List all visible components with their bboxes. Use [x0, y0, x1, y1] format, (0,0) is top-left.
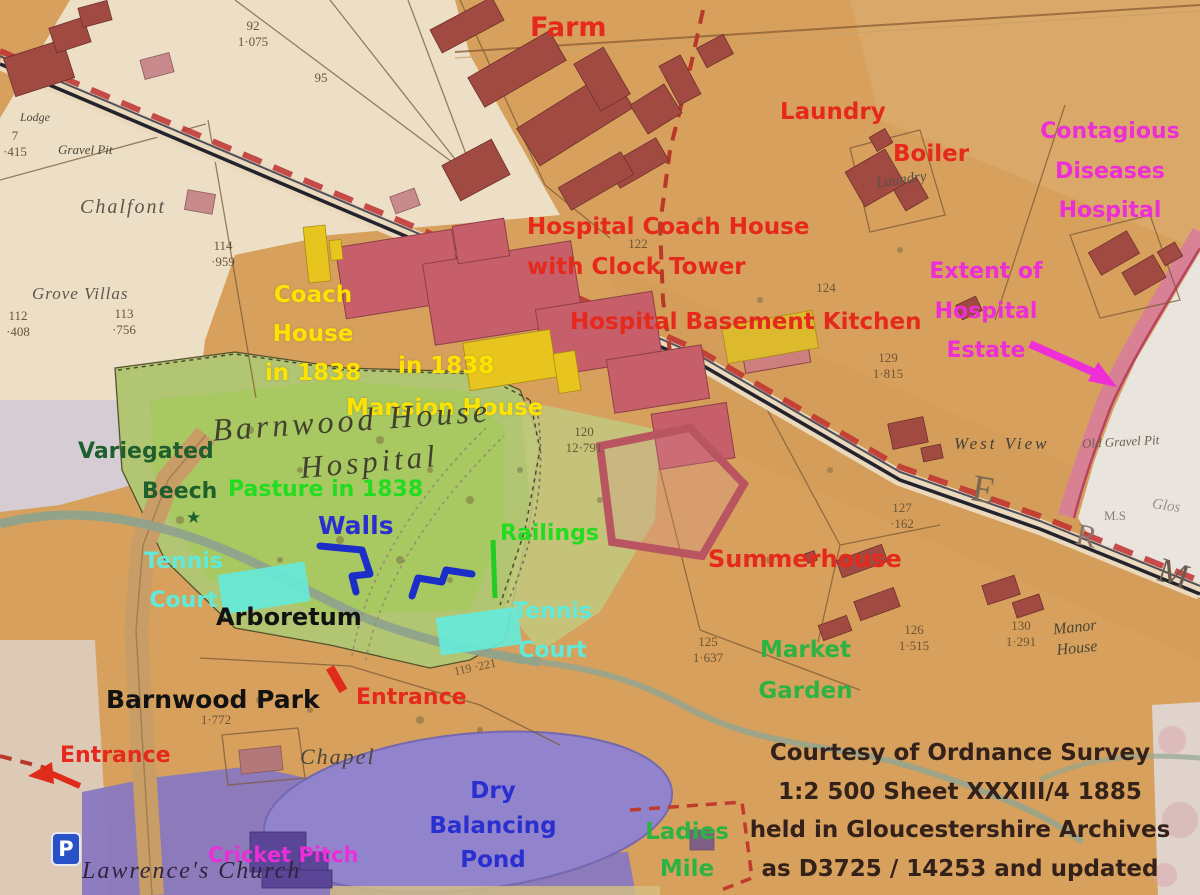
- credit-text: Courtesy of Ordnance Survey 1:2 500 Shee…: [720, 734, 1200, 889]
- map-script-west-view: West View: [954, 434, 1049, 454]
- annotated-map: Farm Laundry Boiler Hospital Coach House…: [0, 0, 1200, 895]
- label-entrance-left: Entrance: [60, 740, 171, 772]
- parcel-129: 129 1·815: [864, 350, 912, 381]
- label-arboretum: Arboretum: [216, 600, 362, 635]
- parcel-122: 122: [618, 236, 658, 252]
- parcel-92: 92 1·075: [228, 18, 278, 49]
- label-in-1838: in 1838: [398, 350, 494, 383]
- map-script-chapel: Chapel: [300, 744, 376, 770]
- parcel-117: 7 ·415: [0, 128, 30, 159]
- parking-icon: P: [53, 834, 79, 864]
- map-script-manor-house: Manor House: [1034, 614, 1118, 664]
- label-laundry: Laundry: [780, 96, 886, 129]
- label-market-garden: Market Garden: [748, 630, 863, 713]
- label-boiler: Boiler: [893, 138, 969, 171]
- map-script-ms: M.S: [1104, 508, 1126, 524]
- map-script-lodge: Lodge: [20, 110, 50, 125]
- parcel-112: 112 ·408: [0, 308, 36, 339]
- label-railings: Railings: [500, 518, 599, 550]
- parcel-125: 125 1·637: [684, 634, 732, 665]
- label-summerhouse: Summerhouse: [708, 542, 902, 577]
- parcel-124: 124: [806, 280, 846, 296]
- beech-star-icon: ★: [186, 506, 201, 531]
- parcel-95: 95: [308, 70, 334, 86]
- label-tennis-court-right: Tennis Court: [505, 593, 600, 670]
- map-script-lawrences-church: Lawrence's Church: [82, 858, 301, 885]
- label-contagious-diseases-hospital: Contagious Diseases Hospital: [1030, 112, 1190, 231]
- label-extent-of-hospital-estate: Extent of Hospital Estate: [916, 252, 1056, 371]
- label-hospital-basement-kitchen: Hospital Basement Kitchen: [570, 306, 921, 339]
- bottom-edge-strip: [330, 886, 660, 895]
- label-variegated: Variegated: [78, 436, 214, 468]
- map-script-gravel-pit: Gravel Pit: [58, 142, 113, 158]
- parcel-130: 130 1·291: [998, 618, 1044, 649]
- label-coach-house-1838: Coach House in 1838: [258, 276, 368, 393]
- map-script-grove-villas: Grove Villas: [32, 284, 129, 304]
- label-farm: Farm: [530, 8, 607, 47]
- railings-line: [493, 540, 495, 598]
- parcel-126: 126 1·515: [890, 622, 938, 653]
- label-hospital-coach-house: Hospital Coach House with Clock Tower: [527, 208, 809, 287]
- parcel-120: 120 12·791: [556, 424, 612, 455]
- parcel-113: 113 ·756: [102, 306, 146, 337]
- parcel-park-area: 1·772: [192, 712, 240, 728]
- parcel-127: 127 ·162: [880, 500, 924, 531]
- map-script-chalfont: Chalfont: [80, 196, 166, 219]
- label-entrance-mid: Entrance: [356, 682, 467, 714]
- label-dry-balancing-pond: Dry Balancing Pond: [408, 774, 578, 878]
- parcel-114: 114 ·959: [200, 238, 246, 269]
- label-beech: Beech: [142, 476, 217, 508]
- label-walls: Walls: [318, 508, 394, 544]
